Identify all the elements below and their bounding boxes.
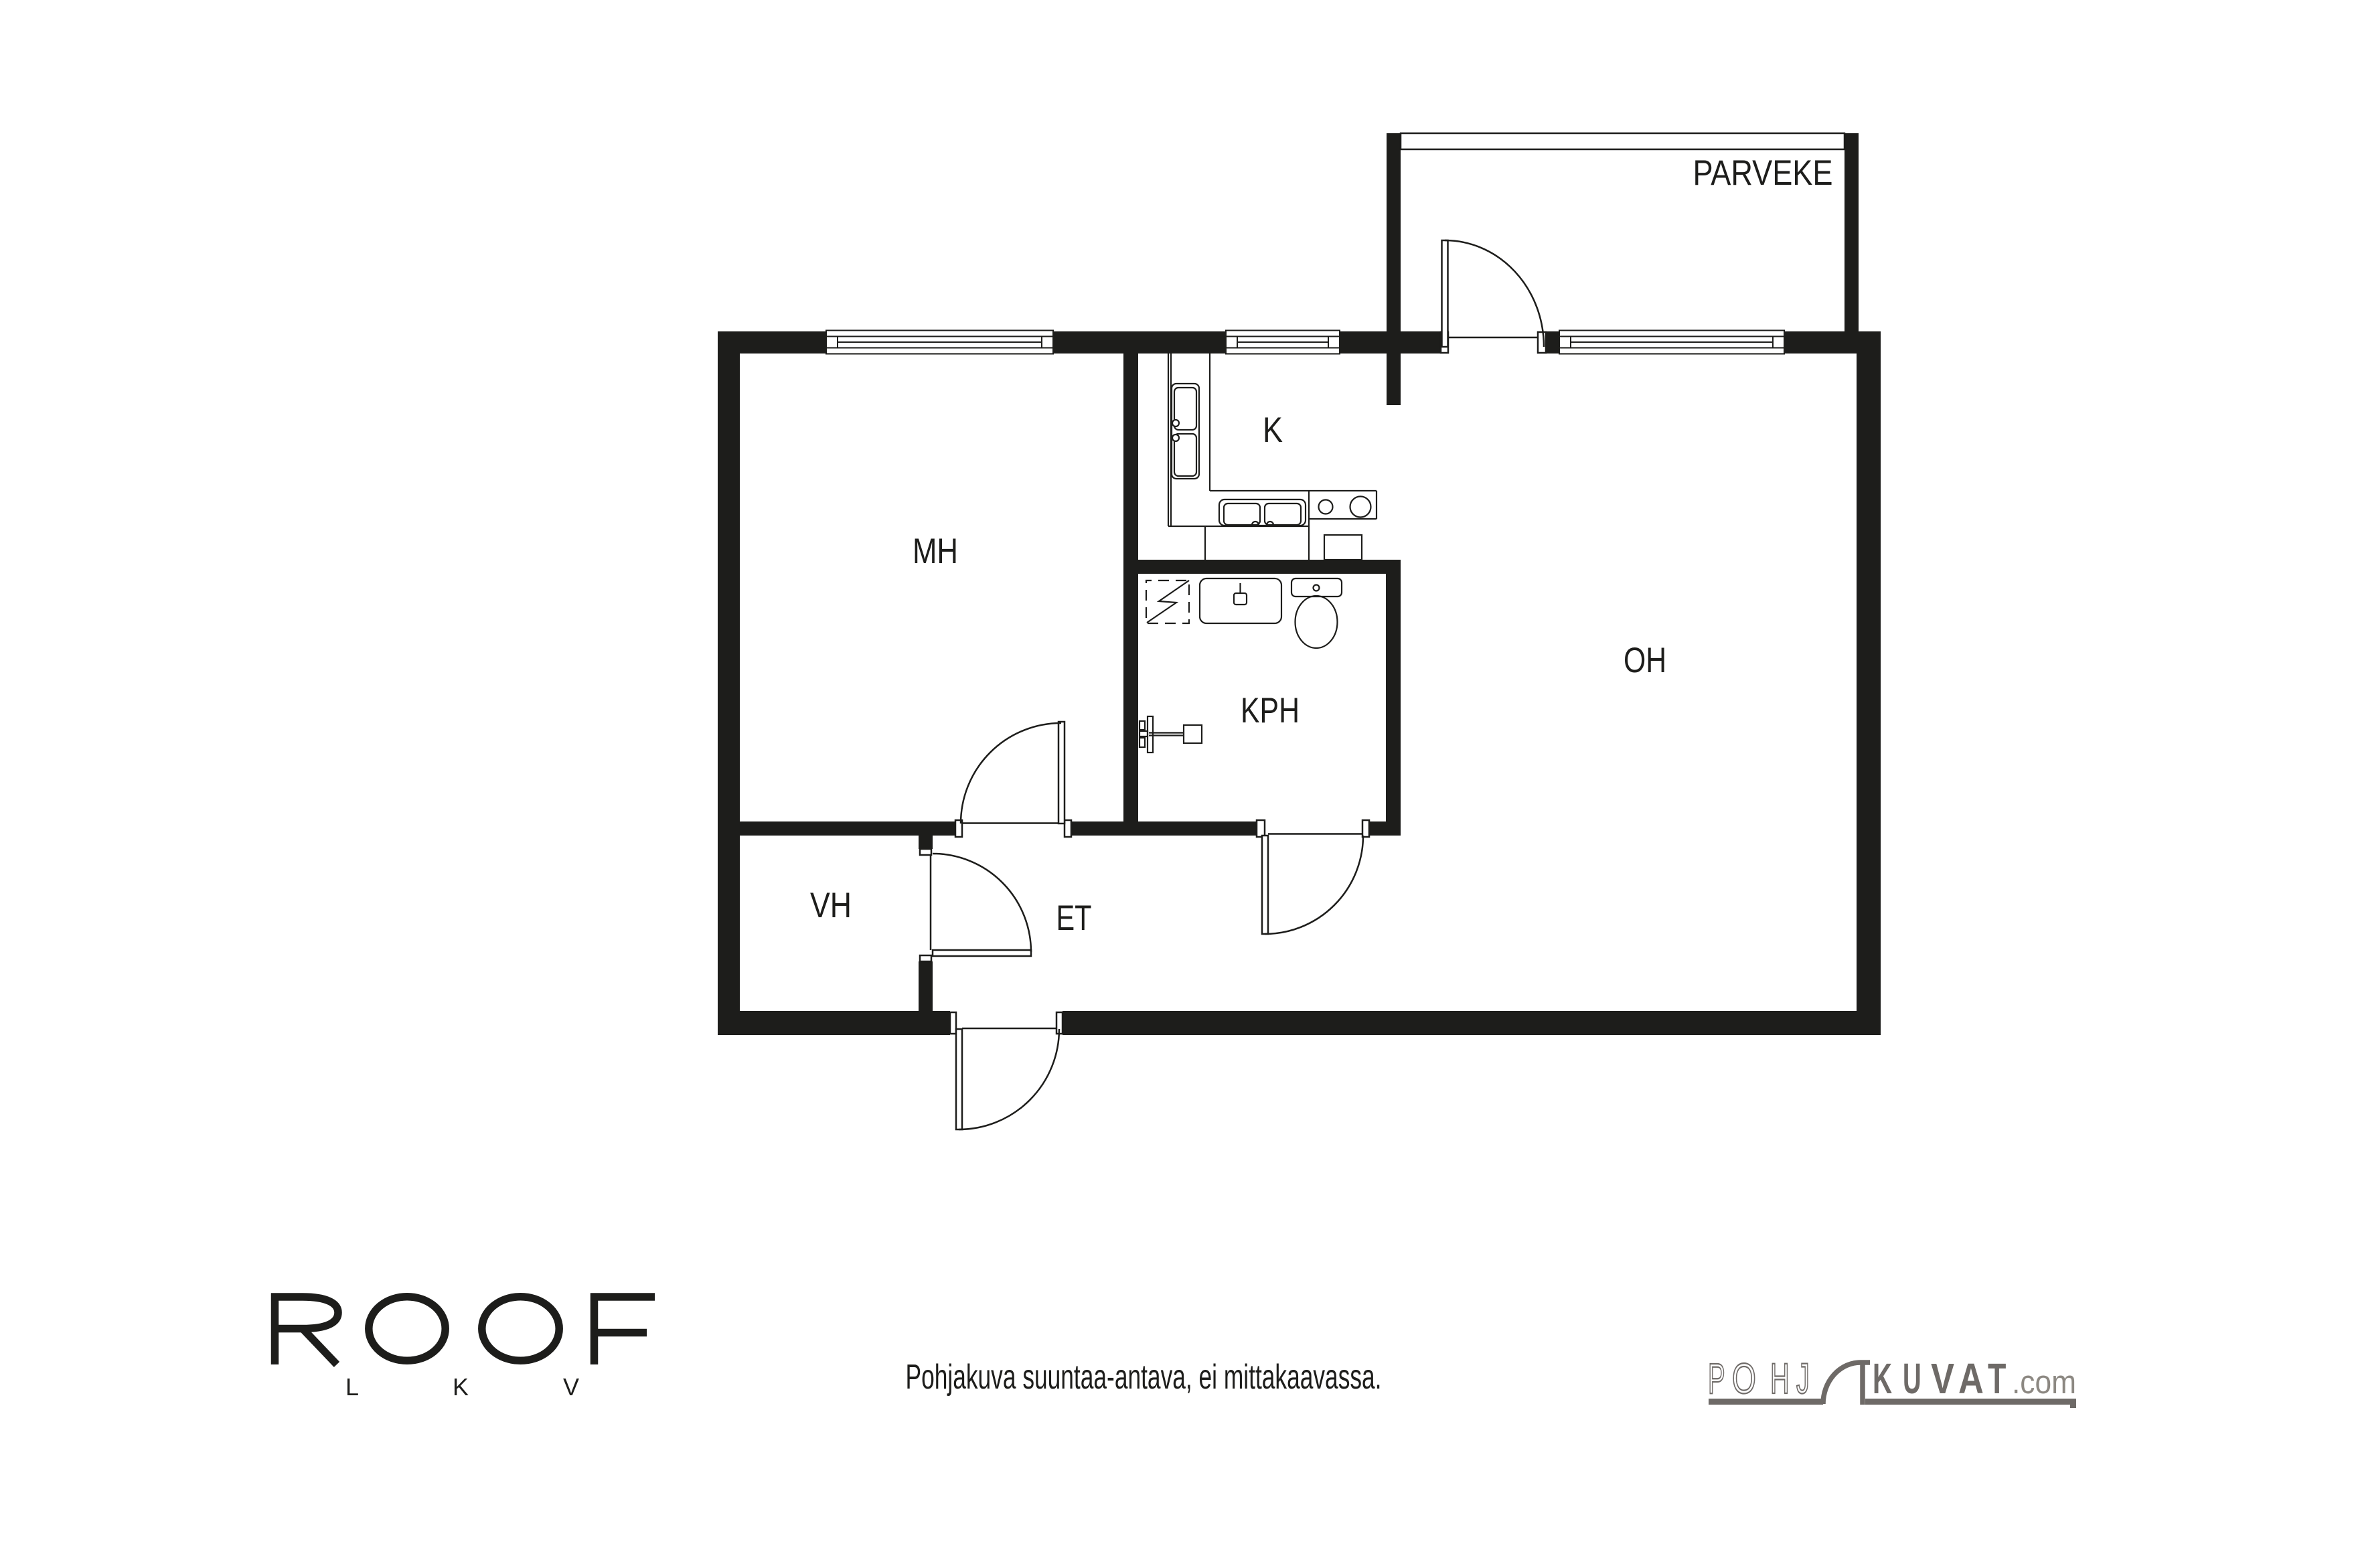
svg-text:K: K [453,1373,469,1401]
svg-text:V: V [563,1373,579,1401]
svg-text:H: H [1770,1356,1790,1403]
svg-text:V: V [1931,1355,1954,1403]
svg-text:OH: OH [1624,641,1666,680]
svg-text:J: J [1796,1356,1810,1403]
svg-text:T: T [1988,1354,2007,1403]
svg-text:VH: VH [810,886,852,925]
svg-text:Pohjakuva suuntaa-antava, ei m: Pohjakuva suuntaa-antava, ei mittakaavas… [906,1358,1382,1397]
svg-text:O: O [1732,1355,1756,1403]
svg-text:K: K [1873,1356,1892,1403]
svg-text:A: A [1958,1355,1984,1403]
svg-text:K: K [1263,410,1283,450]
svg-text:ET: ET [1056,898,1092,938]
svg-text:P: P [1708,1355,1725,1403]
svg-text:MH: MH [913,532,958,571]
svg-text:PARVEKE: PARVEKE [1693,153,1833,193]
svg-text:L: L [345,1373,359,1401]
svg-text:KPH: KPH [1241,691,1300,730]
svg-text:U: U [1903,1355,1921,1403]
svg-text:.com: .com [2012,1364,2076,1401]
